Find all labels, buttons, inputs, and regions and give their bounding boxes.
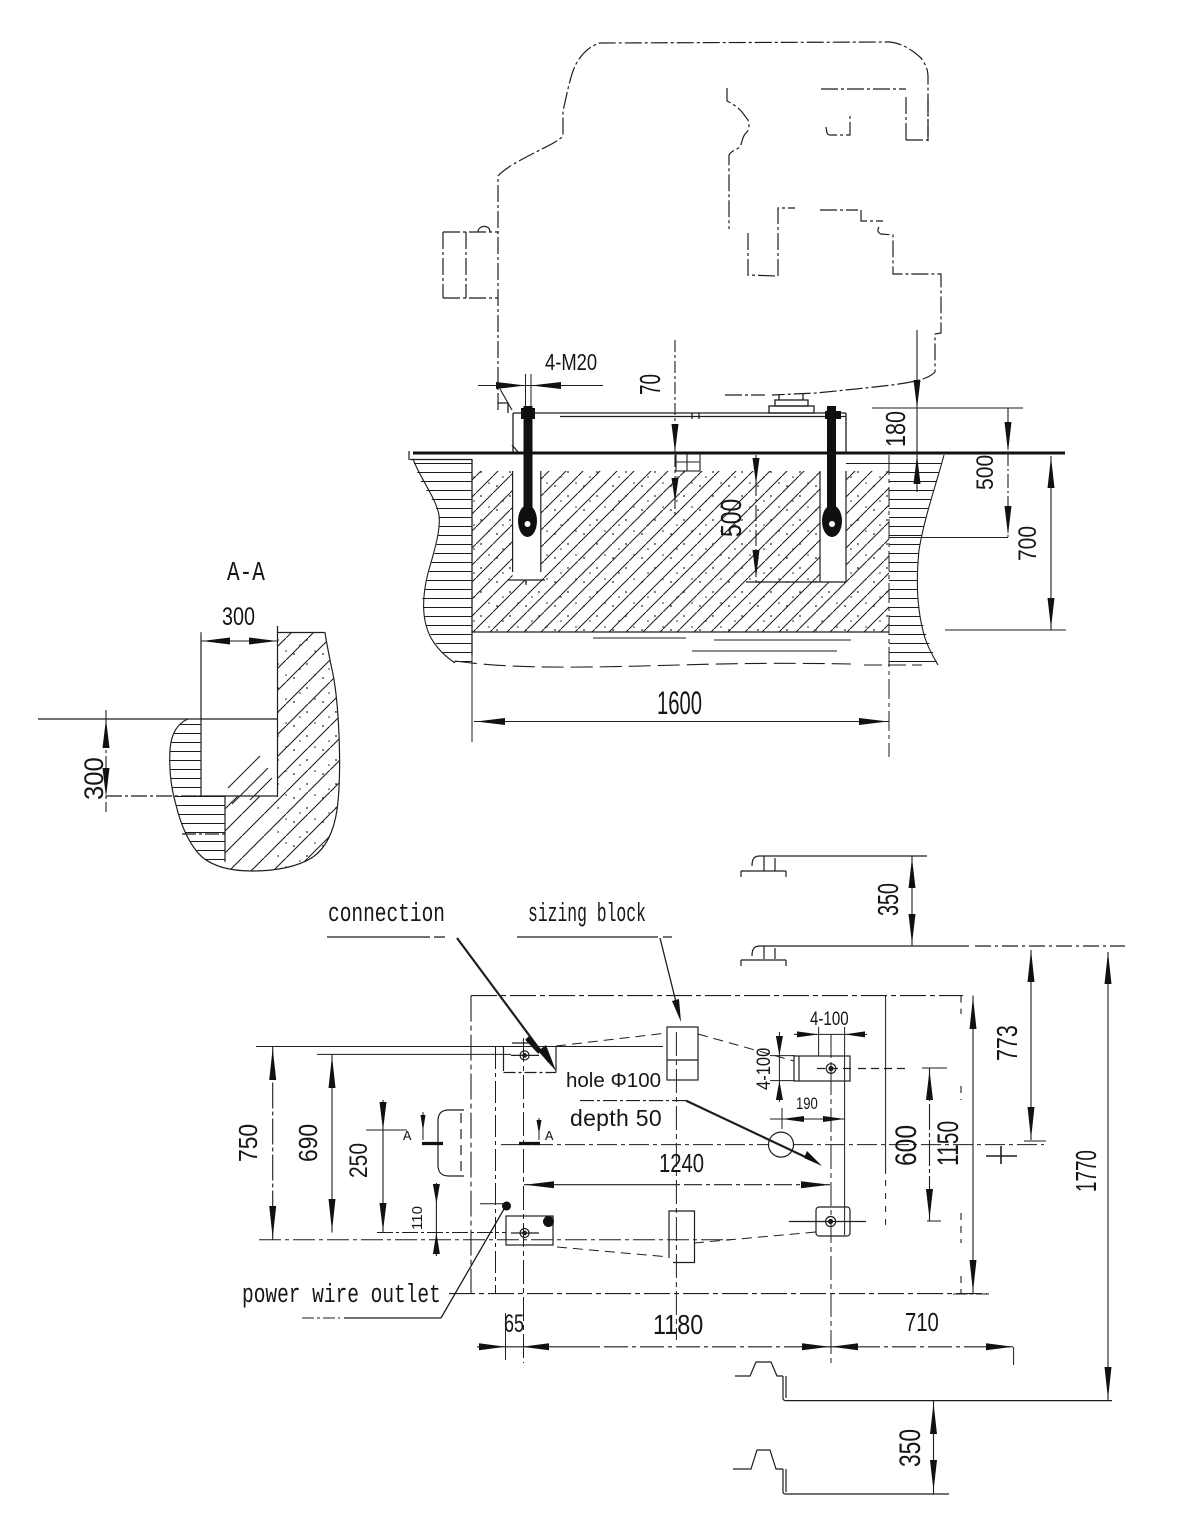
svg-text:4-100: 4-100 (753, 1048, 774, 1090)
svg-text:1770: 1770 (1071, 1150, 1103, 1192)
svg-text:1150: 1150 (933, 1121, 965, 1166)
svg-text:connection: connection (328, 900, 445, 929)
svg-text:A: A (403, 1129, 412, 1145)
svg-text:710: 710 (905, 1308, 939, 1337)
svg-text:70: 70 (635, 374, 667, 395)
svg-text:4-100: 4-100 (810, 1007, 849, 1029)
svg-text:350: 350 (873, 883, 905, 916)
svg-text:750: 750 (235, 1124, 264, 1162)
svg-text:110: 110 (409, 1206, 426, 1230)
svg-text:A-A: A-A (227, 559, 265, 589)
svg-text:depth 50: depth 50 (570, 1105, 662, 1131)
svg-text:1600: 1600 (657, 685, 702, 721)
svg-text:500: 500 (714, 499, 747, 537)
svg-text:350: 350 (893, 1429, 927, 1467)
svg-text:300: 300 (222, 603, 255, 631)
svg-text:500: 500 (972, 455, 999, 490)
svg-text:hole Φ100: hole Φ100 (566, 1069, 661, 1092)
svg-text:690: 690 (295, 1124, 324, 1162)
svg-text:sizing block: sizing block (528, 899, 646, 929)
svg-text:1240: 1240 (659, 1149, 704, 1178)
svg-text:190: 190 (796, 1094, 818, 1113)
svg-text:4-M20: 4-M20 (545, 350, 597, 375)
svg-text:700: 700 (1013, 526, 1041, 561)
svg-text:773: 773 (992, 1025, 1024, 1061)
svg-text:65: 65 (504, 1309, 524, 1338)
svg-text:600: 600 (889, 1125, 923, 1166)
svg-text:A: A (545, 1129, 554, 1145)
svg-text:1180: 1180 (653, 1310, 703, 1340)
svg-text:180: 180 (880, 411, 911, 447)
svg-text:250: 250 (344, 1143, 372, 1178)
svg-text:power wire outlet: power wire outlet (242, 1281, 441, 1310)
